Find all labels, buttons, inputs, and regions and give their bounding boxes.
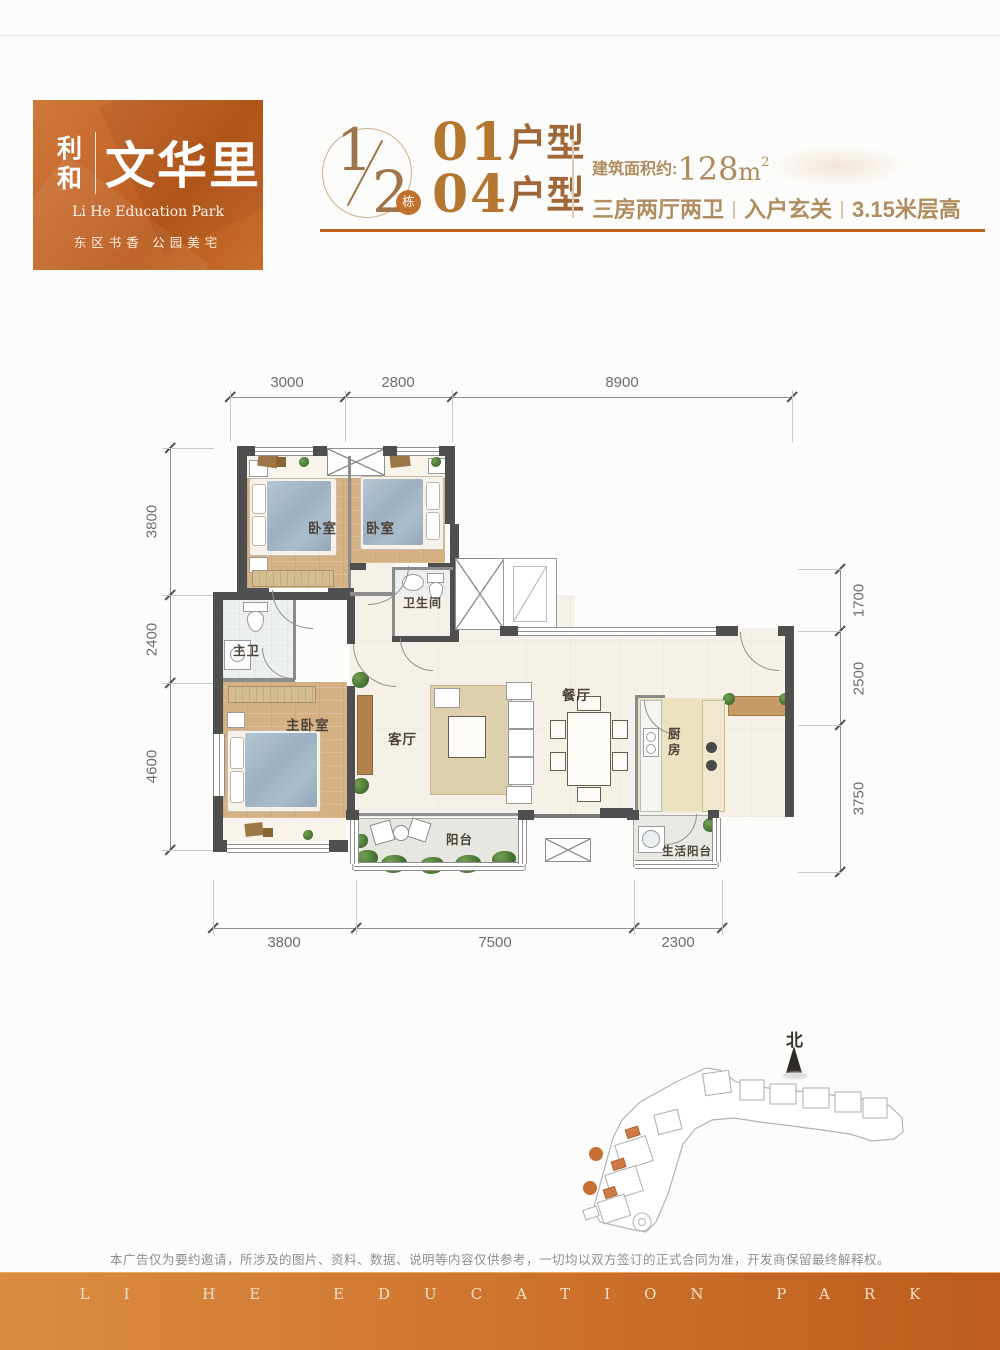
balcony-glass-side	[712, 818, 721, 862]
wall	[347, 686, 355, 816]
building-badge: 栋	[396, 190, 421, 215]
window	[213, 734, 225, 796]
dim-bottom-2: 7500	[467, 934, 523, 951]
tv-console	[357, 695, 373, 775]
wall	[313, 446, 327, 456]
unit-type-line2: 04户型	[432, 164, 584, 225]
label-bedroom1: 卧室	[308, 517, 337, 537]
wall	[329, 840, 348, 852]
dim-ext	[798, 872, 842, 873]
bay-chair	[276, 457, 286, 467]
spec-line: 三房两厅两卫入户玄关3.15米层高	[592, 192, 961, 224]
building-numerator: 1	[336, 116, 373, 184]
partition	[223, 678, 295, 682]
dim-ext	[452, 390, 453, 442]
dim-line-top	[230, 397, 792, 398]
watermark-smudge	[768, 146, 908, 186]
dining-chair	[577, 787, 601, 802]
dim-ext	[792, 390, 793, 442]
dim-line-right	[840, 569, 841, 872]
site-plan	[556, 1042, 924, 1238]
wall	[627, 810, 639, 820]
bay-chair	[263, 828, 273, 837]
area-label: 建筑面积约:	[592, 161, 677, 178]
nightstand	[227, 712, 245, 728]
wall	[346, 810, 359, 820]
wall	[237, 446, 247, 596]
spec-foyer: 入户玄关	[744, 197, 832, 222]
dining-chair	[550, 720, 566, 739]
balcony-table	[393, 825, 409, 841]
dining-chair	[612, 720, 628, 739]
balcony-glass	[354, 862, 524, 871]
dim-ext	[345, 390, 346, 442]
top-hairline	[0, 35, 1000, 36]
dim-ext	[356, 880, 357, 935]
sink-bowl	[646, 732, 656, 742]
dim-top-3: 8900	[594, 374, 650, 391]
logo-divider	[95, 132, 96, 194]
wall	[785, 626, 794, 817]
dim-ext	[798, 725, 842, 726]
duvet	[245, 733, 317, 807]
dim-ext	[798, 569, 842, 570]
dim-ext	[230, 390, 231, 442]
wall	[716, 626, 738, 636]
brand-subtitle-en: Li He Education Park	[33, 204, 263, 220]
wall	[213, 592, 223, 850]
spec-rooms: 三房两厅两卫	[592, 197, 724, 222]
dim-left-3: 4600	[144, 739, 161, 795]
unit2-number: 04	[432, 164, 508, 225]
wall	[383, 446, 397, 456]
sink-bowl	[646, 744, 656, 754]
brand-tagline: 东区书香 公园美宅	[33, 232, 263, 251]
header-underline	[320, 229, 985, 232]
footer-banner-bar: LI HE EDUCATION PARK	[0, 1272, 1000, 1350]
wall	[445, 446, 455, 524]
pillow	[252, 484, 266, 514]
dim-ext	[213, 880, 214, 935]
stove-burner	[706, 742, 717, 753]
washer-drum	[642, 830, 660, 848]
sofa-seat	[508, 701, 534, 729]
poster-page: 利和 文华里 Li He Education Park 东区书香 公园美宅 1 …	[0, 0, 1000, 1350]
label-kitchen: 厨房	[668, 726, 683, 758]
area-line: 建筑面积约:128m2	[592, 150, 769, 188]
dim-ext	[798, 631, 842, 632]
area-unit: m	[738, 158, 761, 186]
disclaimer-text: 本广告仅为要约邀请，所涉及的图片、资料、数据、说明等内容仅供参考，一切均以双方签…	[0, 1249, 1000, 1268]
armchair	[434, 688, 460, 708]
pillow	[230, 771, 244, 803]
dim-ext	[634, 880, 635, 935]
wall	[500, 626, 518, 636]
label-master-bath: 主卫	[233, 640, 260, 659]
duvet	[267, 481, 331, 551]
header-divider	[572, 140, 574, 218]
brand-logo-block: 利和 文华里 Li He Education Park 东区书香 公园美宅	[33, 100, 263, 270]
side-table	[506, 682, 532, 700]
dining-chair	[612, 752, 628, 771]
pillow	[426, 482, 440, 510]
wall	[213, 840, 227, 852]
dim-right-3: 3750	[851, 771, 868, 827]
balcony-glass	[635, 860, 717, 869]
dim-right-1: 1700	[851, 573, 868, 629]
wall	[518, 810, 534, 820]
sofa-seat	[508, 729, 534, 757]
pillow	[230, 737, 244, 769]
window	[397, 447, 439, 456]
dim-bottom-1: 3800	[256, 934, 312, 951]
dim-left-1: 3800	[144, 494, 161, 550]
shaft-panel	[513, 566, 547, 622]
elevator-shaft	[455, 558, 505, 630]
pillow	[252, 516, 266, 546]
label-bathroom: 卫生间	[403, 594, 442, 611]
dim-bottom-3: 2300	[650, 934, 706, 951]
ac-unit-box	[327, 448, 385, 476]
wardrobe	[252, 570, 334, 587]
sliding-door-track	[359, 813, 519, 816]
dining-chair	[550, 752, 566, 771]
balcony-glass-side	[350, 820, 359, 864]
area-value: 128	[677, 150, 738, 188]
spec-height: 3.15米层高	[852, 197, 961, 222]
kitchen-counter-right	[702, 700, 725, 812]
window	[518, 627, 716, 636]
dim-ext	[722, 880, 723, 935]
partition	[635, 698, 638, 812]
label-living: 客厅	[388, 728, 417, 748]
label-dining: 餐厅	[562, 684, 591, 704]
dim-line-bottom	[213, 928, 722, 929]
bay-desk	[244, 822, 263, 837]
master-bay-band	[223, 818, 347, 842]
pillow	[426, 512, 440, 540]
footer-banner-text: LI HE EDUCATION PARK	[0, 1285, 1000, 1303]
wardrobe	[228, 686, 316, 703]
dining-table	[567, 712, 611, 786]
wall	[350, 563, 366, 570]
label-balcony: 阳台	[446, 829, 473, 848]
dim-line-left	[170, 448, 171, 850]
label-service-balcony: 生活阳台	[662, 843, 712, 859]
stove-burner	[706, 760, 717, 771]
window	[227, 844, 329, 853]
dim-right-2: 2500	[851, 651, 868, 707]
sofa-seat	[508, 757, 534, 785]
spec-separator	[841, 201, 843, 219]
spec-separator	[733, 201, 735, 219]
window	[255, 447, 313, 456]
brand-name-large: 文华里	[105, 126, 261, 198]
dim-top-1: 3000	[259, 374, 315, 391]
dim-ext	[162, 850, 214, 851]
brand-name-small: 利和	[57, 134, 87, 194]
wall	[347, 592, 355, 644]
dim-ext	[162, 595, 214, 596]
label-bedroom2: 卧室	[366, 517, 395, 537]
dim-left-2: 2400	[144, 612, 161, 668]
dim-top-2: 2800	[370, 374, 426, 391]
label-master-bedroom: 主卧室	[286, 714, 330, 734]
side-table	[506, 786, 532, 804]
dim-ext	[162, 683, 214, 684]
balcony-glass-side	[518, 820, 527, 864]
wall-thin	[534, 814, 604, 818]
partition	[635, 695, 665, 698]
coffee-table	[448, 716, 486, 758]
dim-ext	[162, 448, 214, 449]
ac-unit-box	[545, 838, 591, 862]
